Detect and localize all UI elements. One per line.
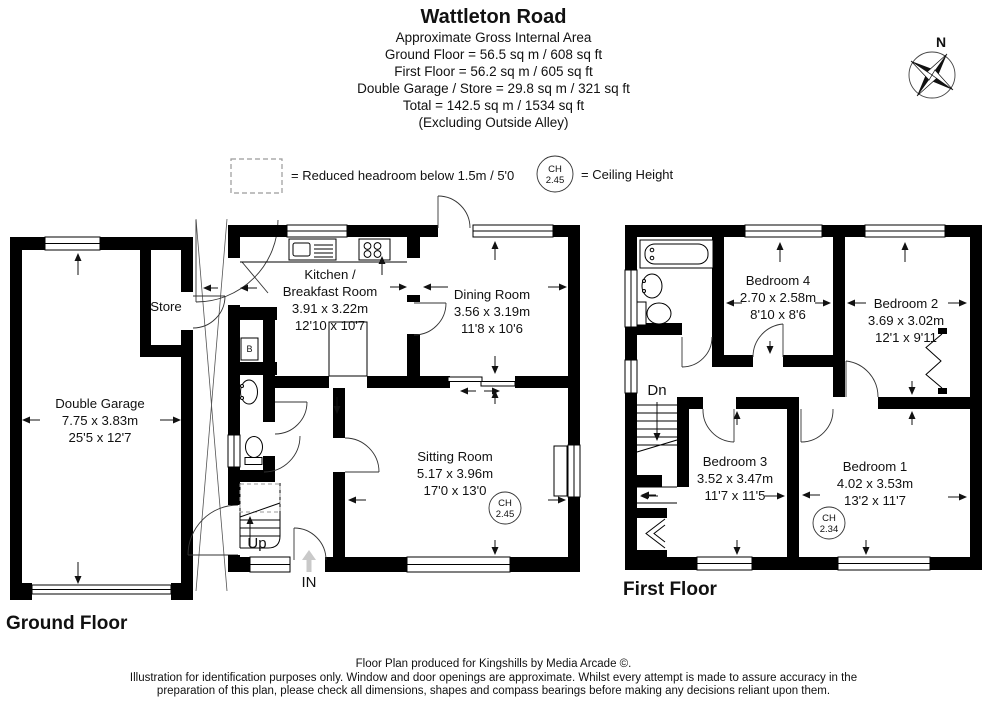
cupboard-icon xyxy=(646,519,665,548)
footer-line-1: Floor Plan produced for Kingshills by Me… xyxy=(0,658,987,672)
sitting-door-arc xyxy=(345,438,379,472)
bathroom-basin-icon xyxy=(642,274,662,298)
alley-bottom-door-arc xyxy=(188,505,238,555)
first-floor-title: First Floor xyxy=(623,579,718,600)
sink-icon xyxy=(289,239,336,260)
room-size-metric: 5.17 x 3.96m xyxy=(417,466,493,481)
bedroom2-label: Bedroom 2 3.69 x 3.02m 12'1 x 9'11 xyxy=(868,296,944,345)
room-size-imperial: 25'5 x 12'7 xyxy=(69,430,132,445)
reduced-headroom-area xyxy=(240,484,280,512)
bedroom1-label: Bedroom 1 4.02 x 3.53m 13'2 x 11'7 xyxy=(837,459,913,508)
footer-line-2: Illustration for identification purposes… xyxy=(0,672,987,686)
wc-toilet-icon xyxy=(245,437,263,465)
ceiling-height-example: 2.45 xyxy=(546,175,565,186)
reduced-headroom-label: = Reduced headroom below 1.5m / 5'0 xyxy=(291,168,514,183)
stairs-down-label: Dn xyxy=(647,382,666,399)
room-name: Double Garage xyxy=(55,396,144,411)
room-name: Kitchen / xyxy=(304,267,356,282)
room-name: Bedroom 3 xyxy=(703,454,768,469)
ch-abbr: CH xyxy=(498,498,512,509)
store-label: Store xyxy=(150,299,182,314)
first-floor-plan: Bedroom 4 2.70 x 2.58m 8'10 x 8'6 Bedroo… xyxy=(623,225,982,600)
floorplan-drawing: N = Reduced headroom below 1.5m / 5'0 CH… xyxy=(0,0,987,720)
bedroom1-door-arc xyxy=(801,409,833,442)
room-name: Sitting Room xyxy=(417,449,493,464)
bedroom3-door-arc xyxy=(703,409,734,442)
entrance-label: IN xyxy=(302,574,317,591)
sliding-door-rail xyxy=(448,377,482,382)
floorplan-page: Wattleton Road Approximate Gross Interna… xyxy=(0,0,987,720)
kitchen-label: Kitchen / Breakfast Room 3.91 x 3.22m 12… xyxy=(283,267,378,333)
sliding-door-rail xyxy=(481,382,515,387)
room-name: Bedroom 4 xyxy=(746,273,811,288)
room-size-metric: 7.75 x 3.83m xyxy=(62,413,138,428)
sitting-room-label: Sitting Room 5.17 x 3.96m 17'0 x 13'0 xyxy=(417,449,493,498)
room-name: Bedroom 2 xyxy=(874,296,939,311)
bath-icon xyxy=(640,240,713,268)
boiler-box: B xyxy=(241,338,258,360)
dining-room-label: Dining Room 3.56 x 3.19m 11'8 x 10'6 xyxy=(454,287,530,336)
room-size-imperial: 11'7 x 11'5 xyxy=(704,488,765,503)
ceiling-height-badge-bedroom1: CH 2.34 xyxy=(813,507,845,539)
dining-door-arc xyxy=(414,303,446,335)
entrance-arrow-icon xyxy=(302,550,316,572)
footer-line-3: preparation of this plan, please check a… xyxy=(0,685,987,699)
room-name: Bedroom 1 xyxy=(843,459,908,474)
room-size-imperial: 13'2 x 11'7 xyxy=(844,493,906,508)
room-size-metric: 2.70 x 2.58m xyxy=(740,290,816,305)
ground-floor-plan: B xyxy=(6,196,580,634)
radiator xyxy=(554,446,567,496)
stairs-down-icon xyxy=(637,402,677,503)
bathroom-toilet-icon xyxy=(637,302,671,325)
room-size-metric: 3.91 x 3.22m xyxy=(292,301,368,316)
room-name: Dining Room xyxy=(454,287,530,302)
ceiling-height-icon: CH 2.45 xyxy=(537,156,573,192)
room-size-metric: 4.02 x 3.53m xyxy=(837,476,913,491)
back-door-arc xyxy=(438,196,470,228)
hob-icon xyxy=(359,239,390,260)
first-floor-doors xyxy=(682,324,878,442)
room-size-imperial: 11'8 x 10'6 xyxy=(461,321,523,336)
ceiling-height-label: = Ceiling Height xyxy=(581,167,674,182)
bedroom4-door-arc xyxy=(753,324,783,357)
double-garage-label: Double Garage 7.75 x 3.83m 25'5 x 12'7 xyxy=(55,396,144,445)
compass-icon: N xyxy=(909,34,955,98)
footer-disclaimer: Floor Plan produced for Kingshills by Me… xyxy=(0,658,987,699)
ch-value: 2.45 xyxy=(496,509,515,520)
ch-abbr: CH xyxy=(822,513,836,524)
room-size-imperial: 17'0 x 13'0 xyxy=(424,483,487,498)
room-name: Breakfast Room xyxy=(283,284,378,299)
stairs-up-label: Up xyxy=(247,535,266,552)
room-size-imperial: 8'10 x 8'6 xyxy=(750,307,806,322)
boiler-label: B xyxy=(246,344,252,354)
house-outer-walls xyxy=(228,225,580,572)
ch-value: 2.34 xyxy=(820,524,839,535)
room-size-imperial: 12'1 x 9'11 xyxy=(875,330,937,345)
compass-north-label: N xyxy=(936,34,946,50)
ceiling-height-badge-sitting: CH 2.45 xyxy=(489,492,521,524)
room-size-imperial: 12'10 x 10'7 xyxy=(295,318,365,333)
ceiling-height-abbr: CH xyxy=(548,164,562,175)
legend: = Reduced headroom below 1.5m / 5'0 CH 2… xyxy=(231,156,674,193)
room-size-metric: 3.52 x 3.47m xyxy=(697,471,773,486)
bedroom3-label: Bedroom 3 3.52 x 3.47m 11'7 x 11'5 xyxy=(697,454,773,503)
room-size-metric: 3.69 x 3.02m xyxy=(868,313,944,328)
ground-floor-title: Ground Floor xyxy=(6,613,128,634)
wc-door-arc xyxy=(275,402,307,434)
bedroom4-label: Bedroom 4 2.70 x 2.58m 8'10 x 8'6 xyxy=(740,273,816,322)
room-size-metric: 3.56 x 3.19m xyxy=(454,304,530,319)
reduced-headroom-swatch xyxy=(231,159,282,193)
wc-basin-icon xyxy=(241,380,258,404)
bathroom-door-arc xyxy=(682,337,712,367)
bedroom2-door-arc xyxy=(846,361,878,397)
